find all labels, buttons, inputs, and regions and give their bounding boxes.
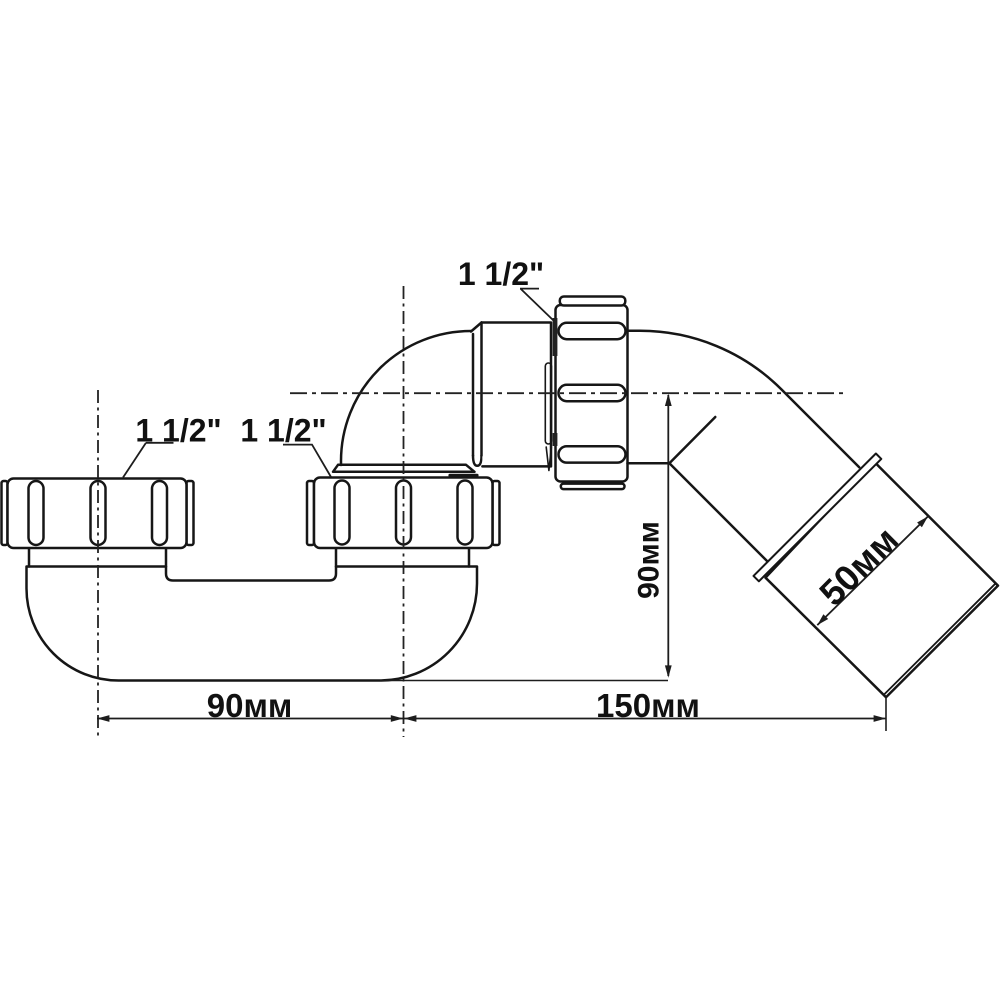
svg-text:1 1/2": 1 1/2" bbox=[458, 256, 544, 292]
svg-text:90мм: 90мм bbox=[633, 521, 666, 599]
svg-text:1 1/2": 1 1/2" bbox=[240, 413, 326, 449]
svg-text:150мм: 150мм bbox=[596, 687, 700, 724]
svg-text:90мм: 90мм bbox=[207, 687, 293, 724]
